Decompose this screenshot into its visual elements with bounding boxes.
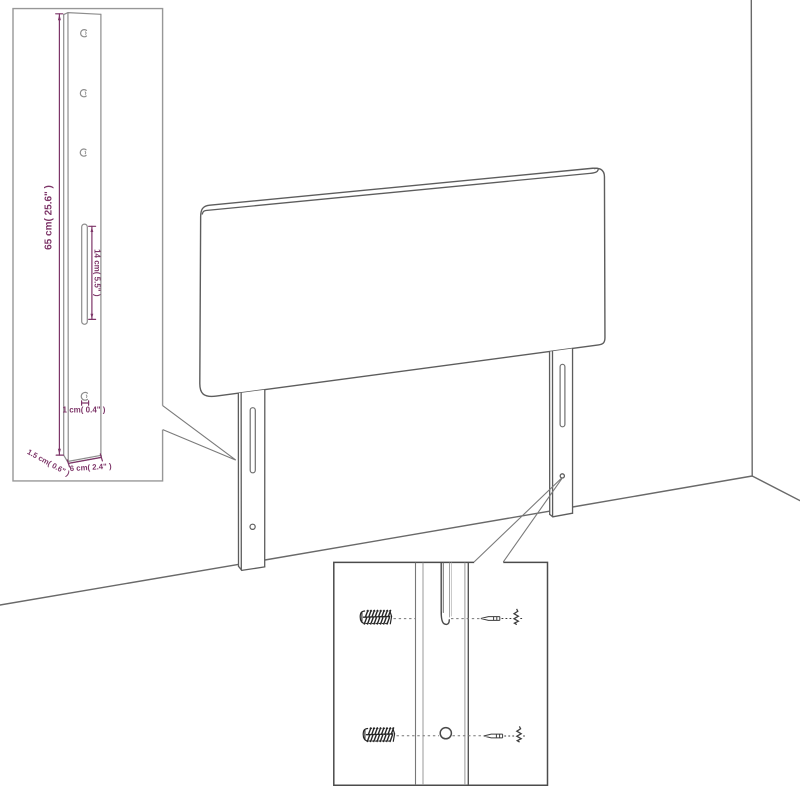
svg-text:1 cm( 0.4" ): 1 cm( 0.4" ): [63, 406, 106, 415]
svg-text:65 cm( 25.6" ): 65 cm( 25.6" ): [44, 185, 55, 250]
svg-text:14 cm( 5.5" ): 14 cm( 5.5" ): [93, 249, 102, 297]
